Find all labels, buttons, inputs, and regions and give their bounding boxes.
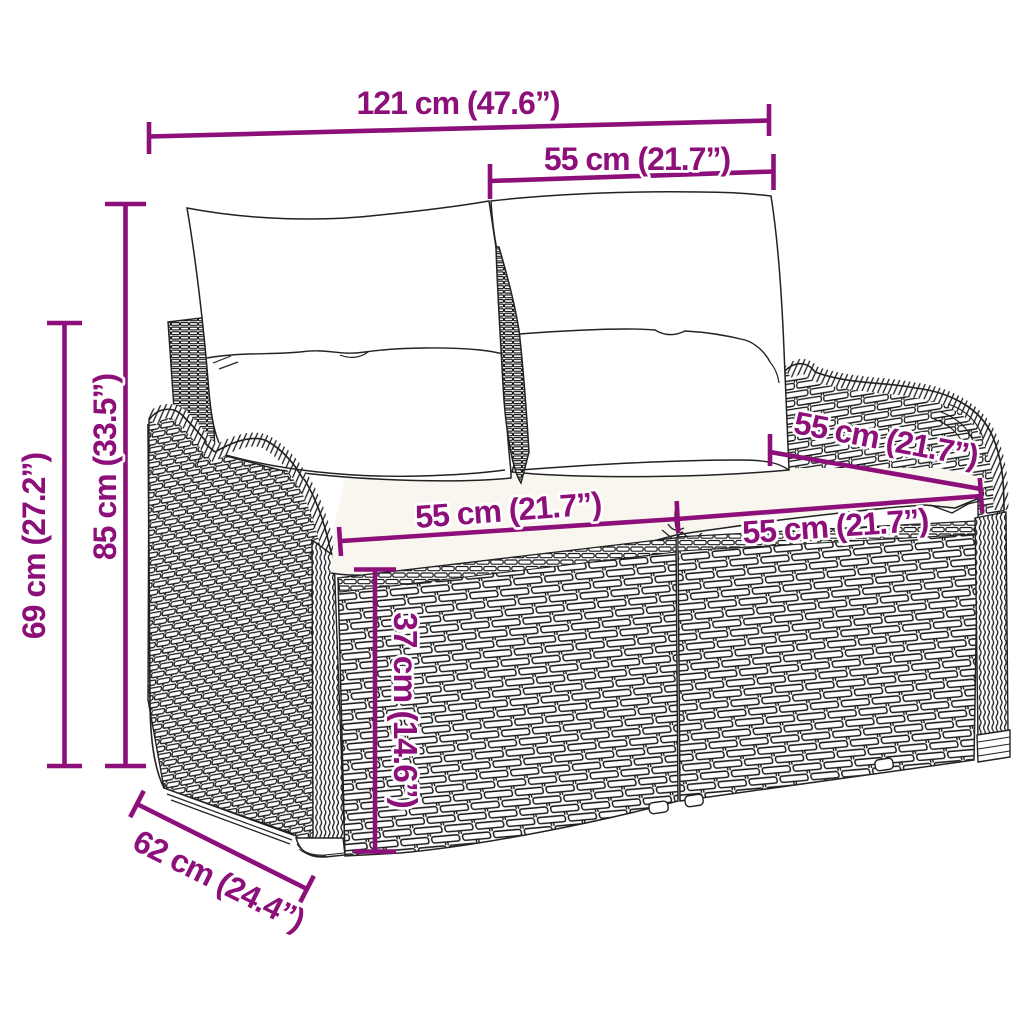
svg-text:55 cm (21.7”): 55 cm (21.7”) <box>544 141 731 177</box>
svg-text:69 cm (27.2”): 69 cm (27.2”) <box>16 453 52 640</box>
svg-text:37 cm (14.6”): 37 cm (14.6”) <box>386 612 423 808</box>
svg-text:121 cm (47.6”): 121 cm (47.6”) <box>356 85 559 121</box>
svg-text:85 cm (33.5”): 85 cm (33.5”) <box>87 374 123 561</box>
